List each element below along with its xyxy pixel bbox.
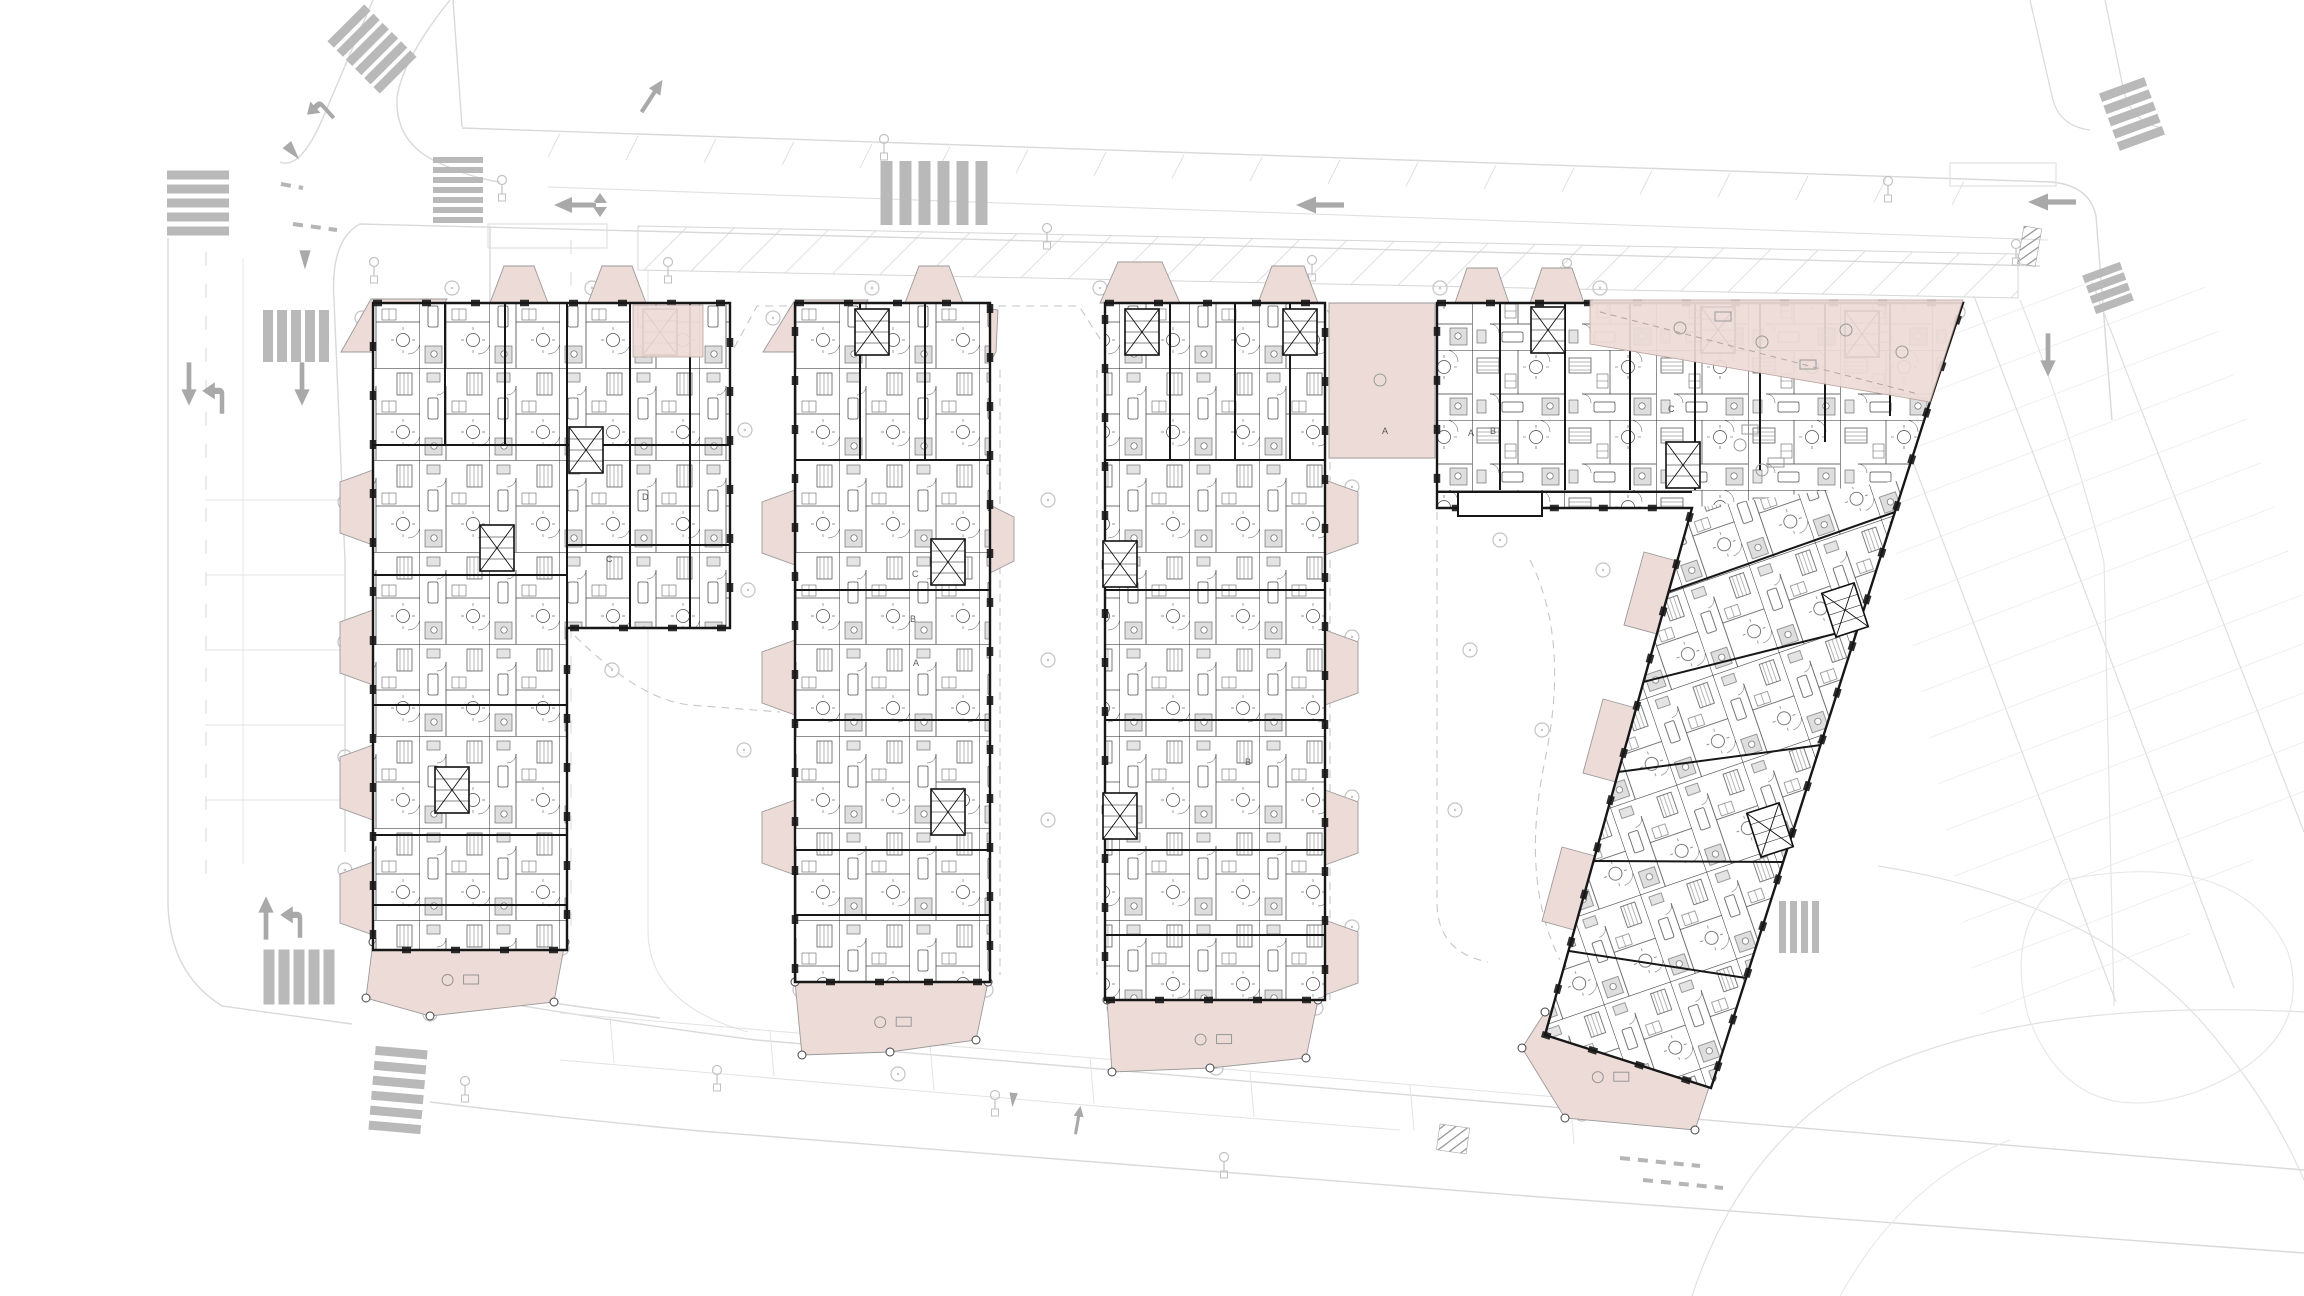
road-arrow-down	[294, 362, 309, 405]
road-arrow-left	[2028, 194, 2076, 211]
crosswalk	[433, 157, 483, 223]
terrace-post	[886, 1048, 894, 1056]
tree-icon	[865, 281, 879, 295]
tree-icon	[605, 663, 619, 677]
terrace	[588, 266, 646, 303]
apartment-rooms-texture	[1105, 303, 1325, 1000]
tree-icon	[891, 1067, 905, 1081]
entrance-lobby	[1458, 492, 1542, 516]
pedestrian-signal-icon	[498, 176, 507, 202]
road-edge	[430, 1102, 2304, 1253]
terrace-post	[1302, 1054, 1310, 1062]
unit-wall	[1594, 861, 1783, 862]
road-edge	[1692, 1010, 2304, 1296]
building-block-b2	[1100, 262, 1358, 1076]
road-edge	[2030, 0, 2090, 130]
pedestrian-signal-icon	[1220, 1153, 1229, 1179]
tree-icon	[1463, 643, 1477, 657]
road-mark	[293, 224, 337, 230]
road-arrow-up	[1070, 1105, 1085, 1135]
unit-label: A	[913, 658, 919, 668]
terrace	[762, 640, 795, 715]
terrace-post	[798, 1051, 806, 1059]
road-arrow-double	[554, 193, 607, 217]
parking-bay-divider	[1016, 149, 1028, 173]
apartment-rooms-texture	[795, 303, 990, 982]
terrace	[366, 942, 565, 1016]
parking-stall-line	[1410, 1085, 1414, 1131]
pedestrian-signal-icon	[991, 1091, 1000, 1117]
hatched-curb-patch	[2017, 226, 2041, 267]
pedestrian-signal-icon	[461, 1077, 470, 1103]
parking-bay-divider	[1094, 152, 1106, 176]
road-arrow-down	[181, 362, 196, 405]
building-block-b1	[762, 266, 1014, 1059]
hatched-curb-patch	[1436, 1124, 1469, 1154]
stair-core	[855, 309, 889, 355]
parking-hatch-strip	[638, 226, 2018, 298]
road-mark	[1643, 1180, 1723, 1188]
tree-icon	[766, 311, 780, 325]
parking-bay-divider	[548, 133, 560, 157]
parking-bay-divider	[1718, 173, 1730, 197]
unit-label: B	[1490, 426, 1496, 436]
parking-stall-line	[770, 1031, 774, 1077]
terrace	[340, 862, 373, 935]
parking-bay-divider	[1562, 168, 1574, 192]
stair-core	[1531, 307, 1565, 353]
tree-icon	[445, 281, 459, 295]
terrace	[340, 745, 373, 820]
tree-icon	[738, 423, 752, 437]
terrace-post	[426, 1012, 434, 1020]
terrace	[340, 610, 373, 685]
parking-bay-divider	[1952, 181, 1964, 205]
terrace-post	[972, 1036, 980, 1044]
terrace	[762, 800, 795, 875]
stair-core	[931, 789, 965, 835]
terrace	[1325, 630, 1358, 705]
terrace	[1325, 790, 1358, 865]
terrace	[795, 982, 988, 1055]
parking-bay-divider	[1328, 160, 1340, 184]
road-arrow-tri	[1008, 1092, 1018, 1107]
terrace-post	[1541, 1008, 1549, 1016]
road-arrow-up	[258, 896, 273, 939]
parking-stall-line	[1250, 1071, 1254, 1117]
unit-label: A	[1468, 428, 1474, 438]
road-edge	[560, 1060, 1400, 1130]
parking-bay-divider	[1172, 155, 1184, 179]
tree-icon	[1535, 723, 1549, 737]
terrace-post	[1561, 1114, 1569, 1122]
road-arrow-tri	[299, 250, 310, 269]
stair-core	[480, 525, 514, 571]
crosswalk	[327, 4, 416, 93]
terrace-post	[1206, 1064, 1214, 1072]
road-arrow-turnleft	[280, 906, 302, 938]
terrace	[990, 505, 1014, 573]
site-plan-canvas: CBAABCDCAB	[0, 0, 2304, 1296]
unit-label: B	[910, 614, 916, 624]
terrace-post	[550, 998, 558, 1006]
crosswalk	[881, 161, 988, 225]
pedestrian-signal-icon	[370, 258, 379, 284]
building-block-a	[340, 266, 730, 1020]
tree-icon	[1041, 813, 1055, 827]
road-mark	[1620, 1158, 1700, 1166]
roof-terrace	[633, 305, 703, 357]
road-arrow-up	[636, 76, 668, 116]
crosswalk	[2099, 77, 2165, 151]
parking-bay-divider	[1406, 163, 1418, 187]
tree-icon	[1041, 653, 1055, 667]
parking-stall-line	[1090, 1058, 1094, 1104]
parking-stall-line	[930, 1044, 934, 1090]
terrace-post	[1108, 1068, 1116, 1076]
terrace	[1107, 1000, 1318, 1072]
road-edge	[1840, 1140, 2010, 1296]
stair-core	[569, 427, 603, 473]
tree-icon	[741, 583, 755, 597]
pedestrian-signal-icon	[713, 1066, 722, 1092]
road-edge	[453, 0, 462, 127]
terrace	[1325, 480, 1358, 555]
crosswalk	[1779, 901, 1819, 953]
parking-stall-line	[610, 1017, 614, 1063]
parking-bay-divider	[1484, 165, 1496, 189]
unit-label: D	[642, 492, 649, 502]
unit-label: C	[606, 554, 613, 564]
terrace-post	[1691, 1126, 1699, 1134]
parking-bay-divider	[626, 136, 638, 160]
road-arrow-tri	[283, 141, 304, 163]
terrace	[1325, 920, 1358, 995]
unit-label: B	[1245, 757, 1251, 767]
parking-bay-divider	[1640, 170, 1652, 194]
tree-icon	[1493, 533, 1507, 547]
crosswalk	[263, 310, 329, 362]
parking-bay-divider	[782, 141, 794, 165]
road-edge	[560, 1013, 1640, 1104]
terrace-post	[1518, 1044, 1526, 1052]
unit-label: C	[1668, 404, 1675, 414]
unit-label: C	[912, 569, 919, 579]
road-arrow-left	[1296, 197, 1344, 214]
parking-bay-divider	[1250, 157, 1262, 181]
road-mark	[281, 184, 303, 188]
building-block-c	[1329, 268, 1963, 1134]
unit-label: A	[1382, 426, 1388, 436]
road-edge	[280, 0, 373, 163]
terrace-post	[362, 994, 370, 1002]
terrace	[762, 490, 795, 565]
parking-bay-divider	[860, 144, 872, 168]
terrace	[490, 266, 548, 303]
road-edge	[397, 0, 500, 182]
terrace	[340, 470, 373, 545]
tree-icon	[737, 743, 751, 757]
stair-core	[1283, 309, 1317, 355]
buildings-layer	[340, 262, 1963, 1134]
pedestrian-signal-icon	[880, 135, 889, 161]
tree-icon	[1596, 563, 1610, 577]
stair-core	[1125, 309, 1159, 355]
stair-core	[1103, 541, 1137, 587]
stair-core	[435, 767, 469, 813]
site-plan-svg: CBAABCDCAB	[0, 0, 2304, 1296]
parking-bay-divider	[704, 139, 716, 163]
road-bay	[1950, 163, 2056, 186]
stair-core	[1666, 442, 1700, 488]
parking-bay-divider	[1796, 176, 1808, 200]
tree-icon	[1448, 803, 1462, 817]
crosswalk	[264, 950, 335, 1005]
stair-core	[1103, 793, 1137, 839]
courtyard-dash-line	[1437, 512, 1488, 962]
crosswalk	[167, 171, 229, 236]
stair-core	[931, 539, 965, 585]
tree-icon	[1041, 493, 1055, 507]
crosswalk	[368, 1046, 427, 1134]
